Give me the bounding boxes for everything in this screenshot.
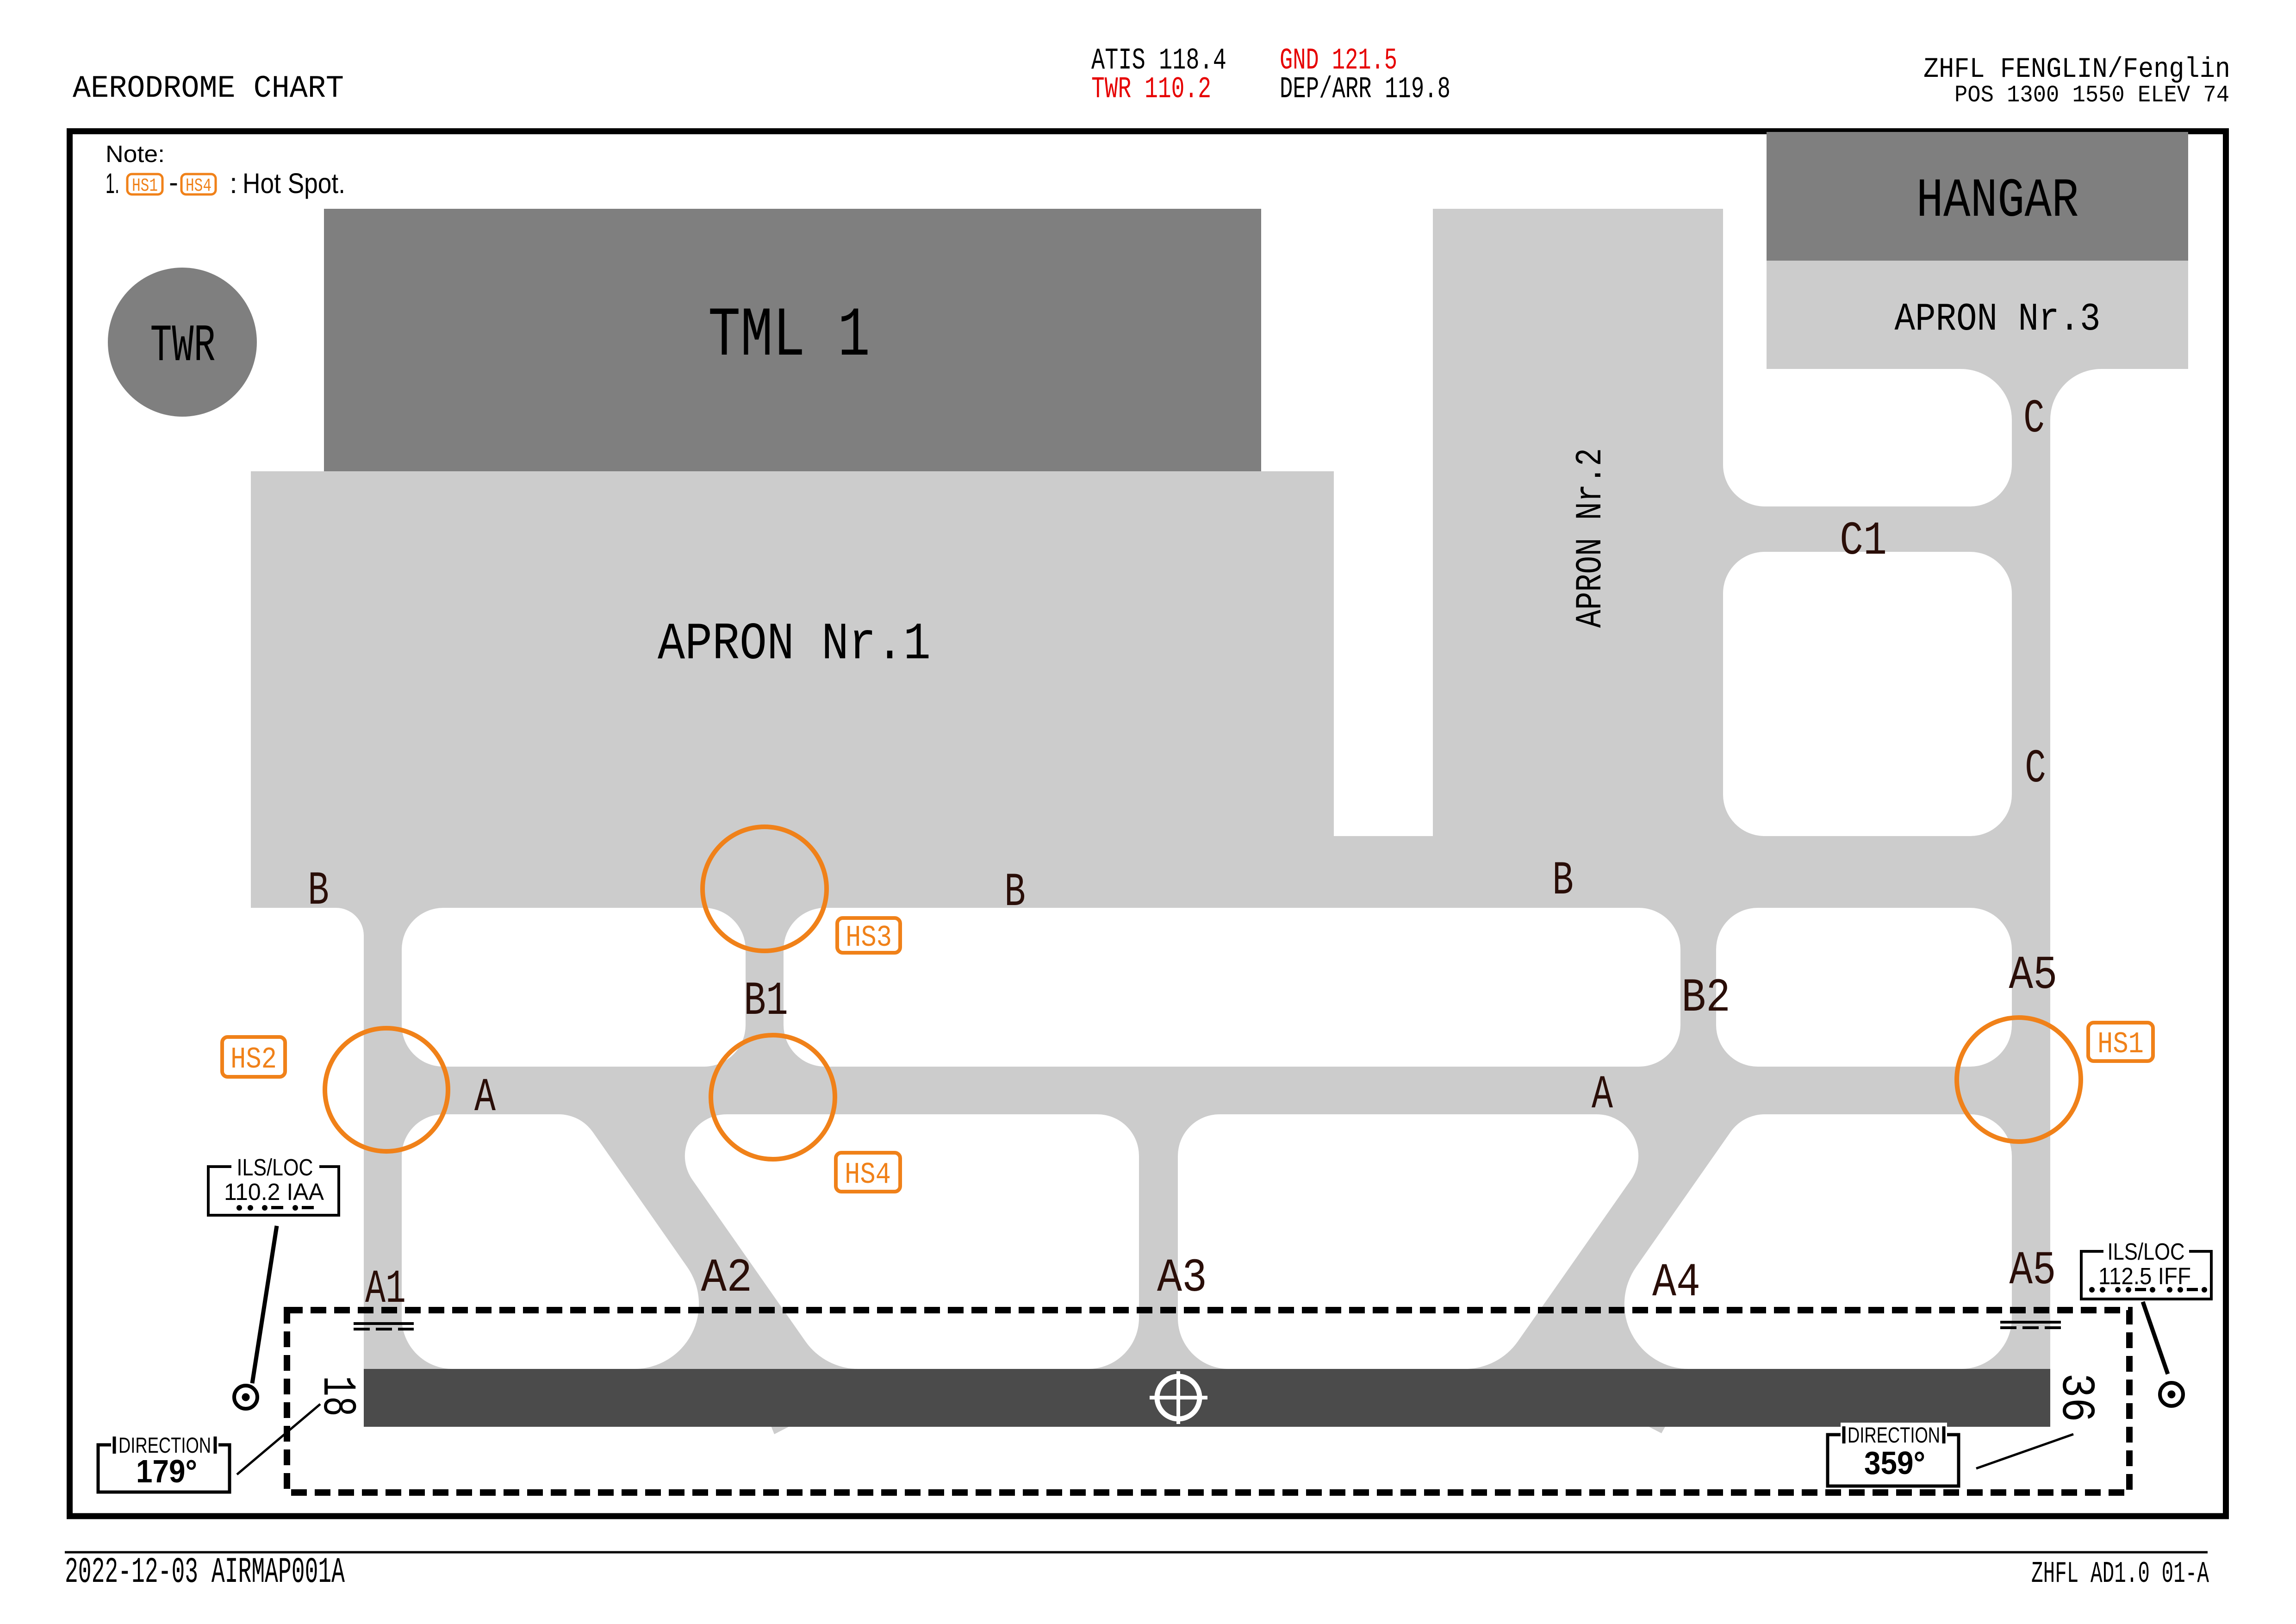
- svg-text:TWR: TWR: [150, 317, 216, 376]
- svg-text:Hot Spot.: Hot Spot.: [243, 168, 345, 199]
- svg-text:36: 36: [2049, 1373, 2103, 1422]
- svg-text:DIRECTION: DIRECTION: [1848, 1423, 1940, 1447]
- svg-text:APRON Nr.1: APRON Nr.1: [658, 615, 931, 674]
- svg-text:APRON Nr.2: APRON Nr.2: [1570, 448, 1612, 628]
- svg-text:A: A: [1592, 1068, 1613, 1122]
- svg-text:1.: 1.: [106, 168, 119, 199]
- svg-text:-: -: [169, 167, 178, 198]
- svg-text:B: B: [308, 864, 329, 918]
- svg-text:B: B: [1004, 866, 1026, 919]
- svg-text:APRON Nr.3: APRON Nr.3: [1895, 298, 2101, 342]
- svg-text:C: C: [2025, 742, 2046, 796]
- svg-text:112.5 IFF: 112.5 IFF: [2098, 1263, 2191, 1289]
- svg-text:ZHFL FENGLIN/Fenglin: ZHFL FENGLIN/Fenglin: [1923, 54, 2230, 86]
- svg-text:TWR 110.2: TWR 110.2: [1091, 72, 1211, 106]
- svg-text:AERODROME CHART: AERODROME CHART: [73, 71, 344, 106]
- svg-text:HS2: HS2: [230, 1043, 277, 1077]
- svg-text:B1: B1: [744, 974, 788, 1028]
- svg-text:18: 18: [310, 1376, 364, 1417]
- svg-text:HS1: HS1: [132, 176, 158, 197]
- svg-text:2022-12-03 AIRMAP001A: 2022-12-03 AIRMAP001A: [65, 1552, 345, 1593]
- svg-text:HS4: HS4: [845, 1158, 891, 1192]
- svg-text::: :: [230, 168, 237, 199]
- svg-text:179°: 179°: [136, 1453, 197, 1489]
- svg-text:TML 1: TML 1: [708, 297, 870, 376]
- svg-text:B: B: [1552, 854, 1574, 908]
- svg-text:POS 1300 1550 ELEV 74: POS 1300 1550 ELEV 74: [1954, 82, 2229, 109]
- svg-text:HS3: HS3: [846, 921, 892, 955]
- svg-text:HANGAR: HANGAR: [1916, 170, 2079, 232]
- svg-text:C: C: [2023, 392, 2045, 446]
- svg-text:A4: A4: [1652, 1256, 1700, 1310]
- svg-text:A: A: [474, 1071, 496, 1124]
- svg-text:DEP/ARR 119.8: DEP/ARR 119.8: [1280, 72, 1450, 106]
- svg-text:HS4: HS4: [186, 176, 212, 197]
- svg-text:110.2 IAA: 110.2 IAA: [224, 1179, 324, 1205]
- svg-text:A5: A5: [2009, 949, 2058, 1002]
- svg-text:A3: A3: [1157, 1251, 1207, 1305]
- svg-text:HS1: HS1: [2097, 1027, 2144, 1062]
- svg-text:B2: B2: [1681, 971, 1730, 1025]
- svg-text:C1: C1: [1840, 514, 1887, 568]
- svg-text:ILS/LOC: ILS/LOC: [2108, 1238, 2185, 1265]
- svg-text:ILS/LOC: ILS/LOC: [237, 1154, 313, 1181]
- svg-text:Note:: Note:: [106, 141, 165, 167]
- svg-text:359°: 359°: [1864, 1445, 1925, 1481]
- svg-text:A2: A2: [701, 1251, 753, 1305]
- svg-text:A5: A5: [2010, 1244, 2056, 1298]
- svg-text:ZHFL AD1.0 01-A: ZHFL AD1.0 01-A: [2031, 1557, 2209, 1591]
